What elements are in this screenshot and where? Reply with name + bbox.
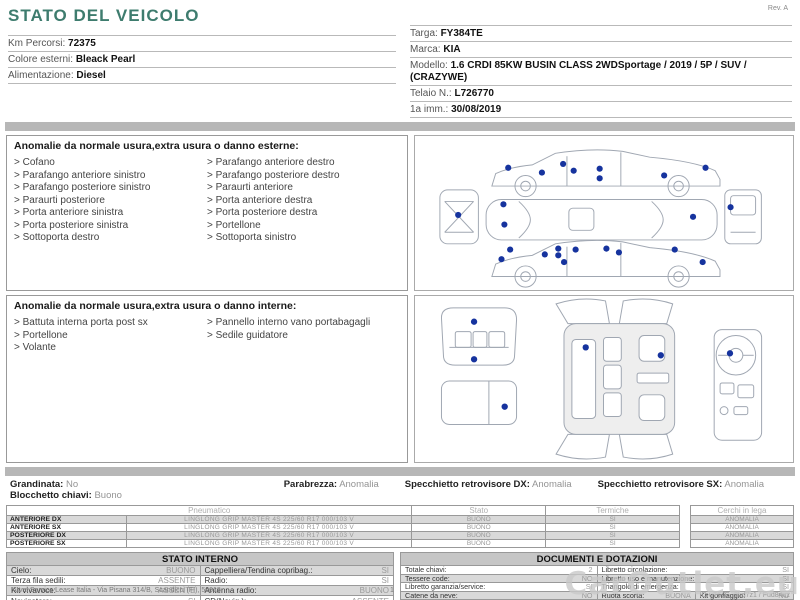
field-alimentazione: Alimentazione: Diesel: [8, 68, 396, 84]
col-header-pneumatico: Pneumatico: [7, 506, 412, 516]
col-header-cerchi: Cerchi in lega: [691, 506, 794, 516]
col-header-stato: Stato: [412, 506, 546, 516]
vehicle-status-report: Rev. A STATO DEL VEICOLO Km Percorsi: 72…: [0, 0, 800, 600]
field-km-percorsi: Km Percorsi: 72375: [8, 35, 396, 52]
anomaly-item: Porta anteriore destra: [207, 195, 400, 208]
interior-anomalies-col2: Pannello interno vano portabagagli Sedil…: [207, 317, 400, 355]
field-marca: Marca: KIA: [410, 42, 792, 58]
section-separator-bar: [5, 122, 795, 131]
field-telaio: Telaio N.: L726770: [410, 86, 792, 102]
field-prima-immatricolazione: 1a imm.: 30/08/2019: [410, 102, 792, 118]
header-right-block: Targa: FY384TE Marca: KIA Modello: 1.6 C…: [410, 4, 792, 118]
table-row: ANOMALIA: [691, 524, 794, 532]
anomaly-item: Parafango anteriore sinistro: [14, 170, 207, 183]
footer-company: Arval Service Lease Italia - Via Pisana …: [12, 587, 221, 594]
exterior-damage-diagram-box: [414, 135, 794, 291]
report-header: STATO DEL VEICOLO Km Percorsi: 72375 Col…: [0, 0, 800, 118]
exterior-anomalies-title: Anomalie da normale usura,extra usura o …: [14, 140, 400, 152]
exterior-anomalies-col1: Cofano Parafango anteriore sinistro Para…: [14, 157, 207, 245]
anomaly-item: Sedile guidatore: [207, 330, 400, 343]
anomaly-item: Sottoporta destro: [14, 232, 207, 245]
interior-anomalies-col1: Battuta interna porta post sx Portellone…: [14, 317, 207, 355]
table-row: Terza fila sedili:ASSENTE Radio:SI: [7, 576, 393, 586]
car-exterior-diagram: [415, 136, 793, 290]
section-separator-bar: [5, 467, 795, 476]
anomaly-item: Parafango anteriore destro: [207, 157, 400, 170]
table-row: Cielo:BUONO Cappelliera/Tendina copribag…: [7, 566, 393, 576]
field-parabrezza: Parabrezza: Anomalia: [284, 479, 379, 490]
table-row: ANOMALIA: [691, 532, 794, 540]
anomaly-item: Cofano: [14, 157, 207, 170]
anomaly-item: Paraurti posteriore: [14, 195, 207, 208]
caroutlet-watermark: CarOutlet.eu: [564, 566, 800, 600]
documenti-dotazioni-header: DOCUMENTI E DOTAZIONI: [401, 553, 793, 566]
anomaly-item: Parafango posteriore destro: [207, 170, 400, 183]
anomaly-item: Paraurti anteriore: [207, 182, 400, 195]
interior-anomalies-section: Anomalie da normale usura,extra usura o …: [0, 295, 800, 463]
interior-damage-diagram-box: [414, 295, 794, 463]
anomaly-item: Volante: [14, 342, 207, 355]
exterior-anomalies-section: Anomalie da normale usura,extra usura o …: [0, 135, 800, 291]
exterior-anomalies-col2: Parafango anteriore destro Parafango pos…: [207, 157, 400, 245]
stato-interno-header: STATO INTERNO: [7, 553, 393, 566]
table-row: ANTERIORE SX LINGLONG GRIP MASTER 4S 225…: [7, 524, 680, 532]
anomaly-item: Portellone: [14, 330, 207, 343]
field-blocchetto-chiavi: Blocchetto chiavi: Buono: [10, 490, 790, 501]
field-colore-esterni: Colore esterni: Bleack Pearl: [8, 52, 396, 68]
anomaly-item: Parafango posteriore sinistro: [14, 182, 207, 195]
col-header-termiche: Termiche: [546, 506, 680, 516]
anomaly-item: Portellone: [207, 220, 400, 233]
condition-summary: Grandinata: No Parabrezza: Anomalia Spec…: [0, 476, 800, 502]
anomaly-item: Battuta interna porta post sx: [14, 317, 207, 330]
tires-section: Pneumatico Stato Termiche ANTERIORE DX L…: [0, 505, 800, 548]
table-row: POSTERIORE SX LINGLONG GRIP MASTER 4S 22…: [7, 540, 680, 548]
field-specchietto-dx: Specchietto retrovisore DX: Anomalia: [405, 479, 572, 490]
car-interior-diagram: [415, 296, 793, 462]
revision-label: Rev. A: [768, 5, 788, 12]
page-number: 1: [390, 587, 394, 594]
exterior-anomalies-box: Anomalie da normale usura,extra usura o …: [6, 135, 408, 291]
anomaly-item: Pannello interno vano portabagagli: [207, 317, 400, 330]
tires-table: Pneumatico Stato Termiche ANTERIORE DX L…: [6, 505, 680, 548]
table-row: ANOMALIA: [691, 540, 794, 548]
anomaly-item: Sottoporta sinistro: [207, 232, 400, 245]
header-left-block: STATO DEL VEICOLO Km Percorsi: 72375 Col…: [8, 4, 396, 118]
field-targa: Targa: FY384TE: [410, 25, 792, 42]
table-row: Navigatore:SI CD(Navig.):ASSENTE: [7, 596, 393, 600]
interior-anomalies-box: Anomalie da normale usura,extra usura o …: [6, 295, 408, 463]
page-title: STATO DEL VEICOLO: [8, 6, 396, 26]
field-grandinata: Grandinata: No: [10, 479, 258, 490]
anomaly-item: Porta posteriore destra: [207, 207, 400, 220]
table-row: ANTERIORE DX LINGLONG GRIP MASTER 4S 225…: [7, 516, 680, 524]
anomaly-item: Porta posteriore sinistra: [14, 220, 207, 233]
alloy-wheels-table: Cerchi in lega ANOMALIA ANOMALIA ANOMALI…: [690, 505, 794, 548]
table-row: ANOMALIA: [691, 516, 794, 524]
field-specchietto-sx: Specchietto retrovisore SX: Anomalia: [598, 479, 764, 490]
table-row: POSTERIORE DX LINGLONG GRIP MASTER 4S 22…: [7, 532, 680, 540]
interior-anomalies-title: Anomalie da normale usura,extra usura o …: [14, 300, 400, 312]
anomaly-item: Porta anteriore sinistra: [14, 207, 207, 220]
field-modello: Modello: 1.6 CRDI 85KW BUSIN CLASS 2WDSp…: [410, 58, 792, 86]
